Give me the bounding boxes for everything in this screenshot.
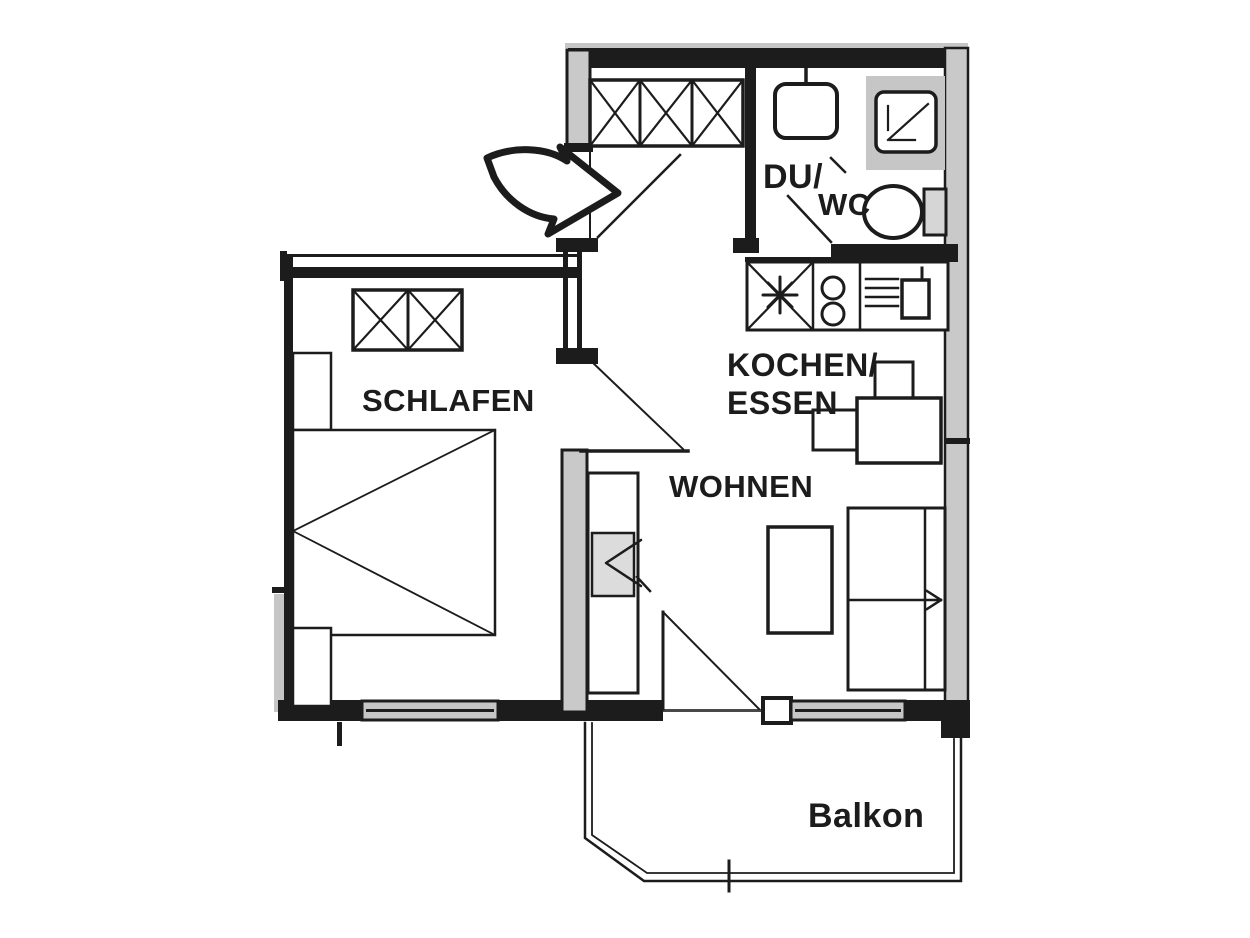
- entrance-arrow-icon: [487, 147, 618, 234]
- interior-wall-line: [577, 252, 582, 350]
- bedroom-window: [362, 701, 498, 720]
- dining-chair: [875, 362, 913, 398]
- left-wall-tick: [272, 587, 295, 593]
- right-wall-tick: [946, 438, 970, 444]
- wall-tick: [337, 722, 342, 746]
- bedroom-top-wall: [283, 267, 577, 278]
- dining-table: [857, 398, 941, 463]
- hall-wardrobe-icon: [590, 80, 743, 146]
- right-wall-foot: [941, 700, 970, 738]
- bedroom-label: SCHLAFEN: [362, 383, 535, 418]
- balcony-label: Balkon: [808, 797, 924, 835]
- interior-wall-stub-top: [556, 238, 598, 252]
- dresser: [293, 353, 331, 430]
- living-window: [791, 701, 905, 720]
- sofa-icon: [848, 508, 945, 690]
- bath-label-line2: WC: [818, 187, 871, 222]
- bedroom-door: [581, 362, 688, 451]
- top-wall: [568, 48, 968, 68]
- bathroom-door-tick: [831, 158, 845, 172]
- bedroom-top-wall-outer: [283, 254, 577, 257]
- tv-icon: [592, 533, 634, 596]
- kitchen-label-line1: KOCHEN/: [727, 347, 878, 383]
- bottom-wall-segment: [905, 700, 945, 721]
- floor-plan-drawing: SCHLAFEN WOHNEN KOCHEN/ ESSEN DU/ WC Bal…: [0, 0, 1250, 938]
- tv-sideboard: [588, 473, 650, 693]
- bedroom-living-wall: [562, 450, 587, 712]
- living-label: WOHNEN: [669, 469, 813, 504]
- balcony-door-threshold: [663, 709, 763, 712]
- entrance-jamb: [567, 50, 590, 146]
- interior-wall-line: [563, 252, 568, 350]
- kitchen-label-line2: ESSEN: [727, 385, 838, 421]
- balcony-door: [663, 612, 759, 709]
- bedroom-left-wall: [284, 254, 293, 712]
- right-wall: [945, 48, 968, 712]
- bath-bottom-wall: [831, 244, 958, 258]
- balcony-door-swing: [663, 612, 759, 709]
- coffee-table: [768, 527, 832, 633]
- bedroom-wardrobe-icon: [353, 290, 462, 350]
- top-wall-outer-line: [565, 43, 968, 48]
- kitchen-wall-stub: [733, 238, 759, 253]
- washbasin-icon: [775, 68, 837, 138]
- bed-icon: [293, 430, 495, 635]
- bottom-wall: [278, 698, 945, 746]
- hall-bath-wall: [745, 64, 756, 242]
- toilet-icon: [864, 186, 946, 238]
- nightstand: [293, 628, 331, 706]
- left-wall-outer-band: [274, 594, 284, 712]
- bath-label-line1: DU/: [763, 158, 823, 196]
- door-post: [763, 698, 791, 723]
- bedroom-door-swing: [592, 362, 683, 449]
- shower-icon: [866, 76, 945, 170]
- floor-plan-canvas: SCHLAFEN WOHNEN KOCHEN/ ESSEN DU/ WC Bal…: [0, 0, 1250, 938]
